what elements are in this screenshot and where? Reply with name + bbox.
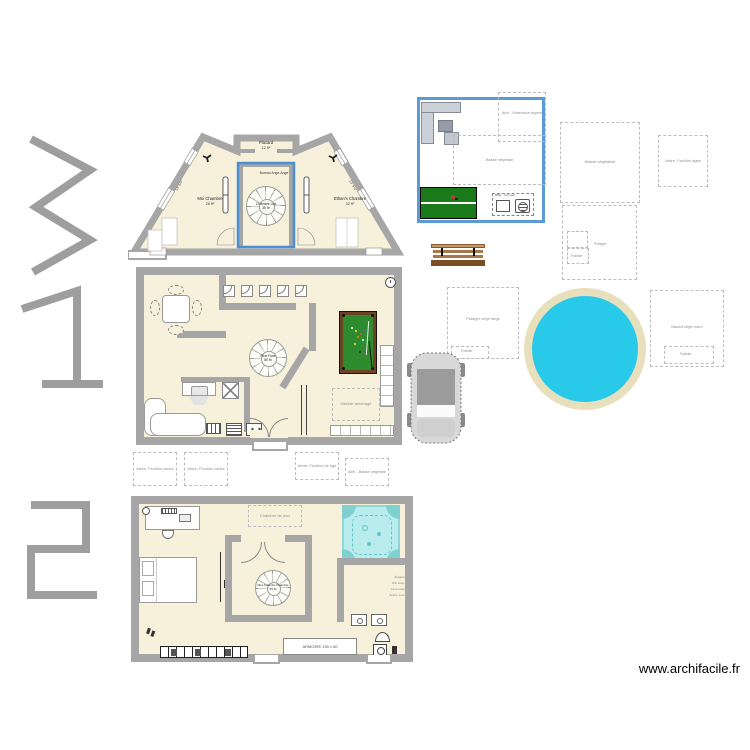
closet-hook-1[interactable] bbox=[223, 285, 235, 297]
ghost-massif-mure-sub: Fraisier bbox=[680, 352, 692, 356]
bathroom-sink-2[interactable] bbox=[371, 614, 387, 626]
ghost-tree-2-label: Arbre, Feuillus caduc bbox=[186, 466, 226, 473]
ghost-shelter-extension-label: Abri - Extension légère bbox=[501, 110, 543, 117]
billiard-pockets bbox=[342, 314, 345, 317]
sofa-main[interactable] bbox=[150, 413, 206, 436]
jacuzzi-basin bbox=[352, 515, 392, 555]
pingpong-table[interactable] bbox=[420, 187, 477, 219]
ghost-potager[interactable]: Potager Fraisier bbox=[562, 205, 637, 280]
bedroom-door-leaf[interactable] bbox=[220, 552, 224, 602]
bench-bolt-right bbox=[473, 248, 475, 256]
ghost-tree-3-label: Arbre, Feuillus de tige bbox=[297, 463, 338, 470]
ghost-massif[interactable]: Massif végétalisé bbox=[560, 122, 640, 203]
spiral-stair-floor1[interactable]: First Floor 85 ft² bbox=[249, 339, 287, 377]
room-left-label: Moi Chambre bbox=[197, 196, 223, 201]
bath-shelf-notes: Étagère WC susp. Lave-main Sèche-serv. bbox=[377, 574, 405, 598]
stair2-area-label: 55 ft² bbox=[269, 588, 276, 592]
outdoor-sofa-horizontal[interactable] bbox=[421, 102, 461, 113]
bbq-side-table bbox=[496, 200, 510, 212]
ghost-shelter[interactable]: Abri - Basse végétale bbox=[345, 458, 389, 486]
stair1-area-label: 85 ft² bbox=[264, 358, 272, 362]
bbq-zone[interactable]: BBQ - Grill gaz bbox=[492, 193, 534, 216]
stair-room-door-gap bbox=[241, 535, 285, 542]
wardrobe-box-2 bbox=[195, 649, 201, 656]
hook-arc-icon bbox=[260, 286, 268, 294]
ghost-massif-mure-label: Massif végé mûre bbox=[651, 324, 723, 331]
ghost-massif-mure[interactable]: Massif végé mûre Fraisier bbox=[650, 290, 724, 367]
floor-number-2[interactable] bbox=[31, 505, 97, 595]
counter-bottom-right[interactable] bbox=[330, 425, 394, 436]
stairwell-wall-left bbox=[239, 164, 243, 246]
garden-bench[interactable] bbox=[431, 244, 485, 267]
sink-bowl-icon bbox=[357, 618, 363, 624]
sliding-door[interactable] bbox=[301, 385, 307, 435]
bathroom-sink-1[interactable] bbox=[351, 614, 367, 626]
blanket-line bbox=[156, 558, 157, 602]
desk-lamp-icon bbox=[142, 507, 150, 515]
hook-arc-icon bbox=[242, 286, 250, 294]
hook-arc-icon bbox=[296, 286, 304, 294]
jacuzzi[interactable] bbox=[342, 505, 400, 563]
bench-slat-1 bbox=[431, 244, 485, 248]
pool-water bbox=[532, 296, 638, 402]
entry-door-leaf-right[interactable] bbox=[269, 418, 288, 437]
ghost-potager-sub: Fraisier bbox=[571, 254, 583, 258]
room-right-label: Ethan's Chambre bbox=[334, 196, 367, 201]
kitchen-cabinet-front bbox=[186, 396, 212, 405]
ghost-furniture-label: Meuble aménagé bbox=[340, 401, 373, 408]
room-left-area: 28 ft² bbox=[206, 202, 215, 206]
bench-slat-4 bbox=[431, 260, 485, 266]
stair-room-leaf-right[interactable] bbox=[264, 542, 285, 563]
ghost-potager-large[interactable]: Potager végé large Fraisier bbox=[447, 287, 519, 359]
floor-number-1[interactable] bbox=[22, 291, 103, 384]
stair-room-leaf-left[interactable] bbox=[241, 542, 262, 563]
floor1-wall-right bbox=[309, 303, 316, 351]
closet-hook-2[interactable] bbox=[241, 285, 253, 297]
dining-chair-top[interactable] bbox=[168, 285, 184, 295]
spiral-stair-floor3[interactable]: Chambre Léa 35 ft² bbox=[246, 186, 286, 226]
ghost-massif-label: Massif végétalisé bbox=[584, 159, 617, 166]
paddle-icon-black bbox=[455, 198, 458, 200]
kitchen-sink bbox=[191, 386, 208, 396]
bench-bolt-left bbox=[441, 248, 443, 256]
toilet[interactable] bbox=[375, 632, 390, 642]
bbq-grill-icon bbox=[515, 199, 530, 213]
stair3-area-label: 35 ft² bbox=[262, 206, 270, 210]
cabinet-label-box[interactable]: ARMOIRE 155 x 60 bbox=[283, 638, 357, 655]
floor-number-3[interactable] bbox=[31, 139, 90, 272]
bbq-label: BBQ - Grill gaz bbox=[495, 193, 515, 197]
car-roof bbox=[417, 369, 455, 405]
closet-hook-5[interactable] bbox=[295, 285, 307, 297]
ghost-potager-label: Potager bbox=[594, 242, 606, 246]
room-right-area: 32 ft² bbox=[346, 202, 355, 206]
floor1-wall-dining bbox=[177, 331, 226, 338]
pool-deck[interactable] bbox=[524, 288, 646, 410]
bath-accessory-icon bbox=[392, 646, 397, 654]
car-hood bbox=[417, 419, 455, 437]
ghost-tree-1-label: Arbre, Feuillus caduc bbox=[135, 466, 175, 473]
ghost-old-tree-label: Arbre, Feuillus âgés bbox=[664, 158, 702, 165]
hook-arc-icon bbox=[278, 286, 286, 294]
dining-table[interactable] bbox=[162, 295, 190, 323]
car-windshield bbox=[417, 405, 455, 417]
floorplan-canvas: Placard 12 ft² Moi Chambre 28 ft² Ethan'… bbox=[0, 0, 750, 750]
watermark: www.archifacile.fr bbox=[639, 661, 740, 676]
ghost-playroom[interactable]: Chambre de jeux bbox=[248, 505, 302, 527]
placard-label: Placard bbox=[259, 140, 274, 145]
dining-chair-bottom[interactable] bbox=[168, 325, 184, 335]
car[interactable] bbox=[405, 351, 467, 445]
bathroom-wall-top bbox=[337, 558, 405, 565]
outdoor-table-1[interactable] bbox=[438, 120, 453, 132]
porch-floor2-right bbox=[366, 655, 392, 664]
grill-grate-icon bbox=[518, 202, 528, 212]
cabinet-label: ARMOIRE 155 x 60 bbox=[302, 644, 337, 649]
window-bottom-right[interactable] bbox=[366, 248, 382, 255]
closet-hook-4[interactable] bbox=[277, 285, 289, 297]
ghost-potager-large-label: Potager végé large bbox=[448, 316, 518, 323]
dining-chair-left[interactable] bbox=[150, 300, 160, 316]
potager-bed-1 bbox=[567, 231, 588, 248]
hook-arc-icon bbox=[224, 286, 232, 294]
wardrobe-box-1 bbox=[171, 649, 177, 656]
billiard-balls bbox=[351, 327, 353, 329]
bed-left[interactable] bbox=[162, 218, 177, 245]
porch-floor1 bbox=[252, 442, 288, 451]
dining-chair-right[interactable] bbox=[192, 300, 202, 316]
counter-right[interactable] bbox=[380, 345, 394, 407]
ghost-tree-3[interactable]: Arbre, Feuillus de tige bbox=[295, 452, 339, 480]
ghost-old-tree[interactable]: Arbre, Feuillus âgés bbox=[658, 135, 708, 187]
monitor-icon bbox=[179, 514, 191, 522]
bathroom-wall-left bbox=[337, 558, 344, 622]
wardrobe-box-3 bbox=[225, 649, 231, 656]
ghost-tree-1[interactable]: Arbre, Feuillus caduc bbox=[133, 452, 177, 486]
pillow-1 bbox=[142, 561, 154, 576]
porch-floor2-left bbox=[253, 655, 280, 664]
master-bed[interactable] bbox=[139, 557, 197, 603]
keyboard-icon bbox=[161, 508, 177, 514]
sink-bowl-icon bbox=[377, 618, 383, 624]
ghost-playroom-label: Chambre de jeux bbox=[259, 513, 291, 520]
kitchen-counter[interactable] bbox=[182, 382, 216, 396]
desk-chair[interactable] bbox=[162, 530, 174, 539]
entry-door-leaf-left[interactable] bbox=[250, 418, 269, 437]
spiral-stair-floor2[interactable]: Mes Parents Chambre 55 ft² bbox=[255, 570, 291, 606]
closet-hook-3[interactable] bbox=[259, 285, 271, 297]
jacuzzi-jets bbox=[362, 525, 368, 531]
washer-drum-icon bbox=[377, 647, 385, 655]
floor1-wall-hall-top bbox=[219, 303, 296, 310]
bath-note-4: Sèche-serv. bbox=[377, 592, 405, 598]
stairwell-wall-top bbox=[239, 164, 293, 167]
pingpong-net-line bbox=[421, 202, 476, 204]
wall-clock-icon[interactable] bbox=[385, 277, 396, 288]
placard-area: 12 ft² bbox=[262, 146, 271, 150]
pillow-2 bbox=[142, 581, 154, 596]
clock-hand bbox=[390, 280, 391, 283]
bed-left-small[interactable] bbox=[148, 230, 162, 251]
ghost-planting-bed[interactable]: Basse végétale bbox=[453, 135, 546, 185]
stairwell-note: Bureau Ange-Ange bbox=[260, 171, 289, 175]
ghost-planting-bed-label: Basse végétale bbox=[485, 157, 514, 164]
slippers-icon bbox=[146, 628, 151, 635]
billiard-cue-black bbox=[369, 341, 373, 367]
oven-appliance[interactable] bbox=[206, 423, 221, 434]
billiard-table[interactable] bbox=[340, 312, 376, 373]
wardrobe-strip[interactable] bbox=[160, 646, 248, 658]
cooktop-hood-icon[interactable] bbox=[222, 382, 239, 399]
ghost-furniture-box[interactable]: Meuble aménagé bbox=[332, 388, 380, 421]
ghost-tree-2[interactable]: Arbre, Feuillus caduc bbox=[184, 452, 228, 486]
dishwasher-appliance[interactable] bbox=[226, 423, 242, 436]
stairwell-wall-right bbox=[289, 164, 293, 246]
ghost-shelter-label: Abri - Basse végétale bbox=[347, 469, 387, 476]
